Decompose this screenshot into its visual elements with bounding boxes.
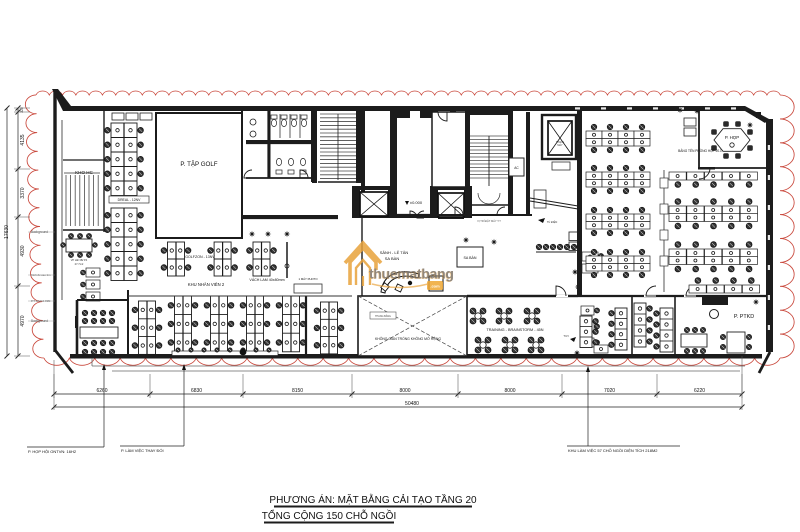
svg-text:P. LÀM VIỆC THAY ĐỔI: P. LÀM VIỆC THAY ĐỔI [121,448,164,453]
svg-text:SA BÀN: SA BÀN [385,256,400,261]
svg-text:17630: 17630 [4,225,10,239]
svg-text:P. HỌP: P. HỌP [725,135,739,140]
svg-text:KHU NHÂN VIÊN 2: KHU NHÂN VIÊN 2 [188,282,225,287]
svg-text:AC: AC [514,166,519,170]
svg-text:PHƯƠNG ÁN: MẶT BẰNG CẢI TẠO TẦ: PHƯƠNG ÁN: MẶT BẰNG CẢI TẠO TẦNG 20 [269,493,477,506]
svg-text:8000: 8000 [504,388,515,394]
svg-text:.com: .com [430,284,440,289]
svg-text:KHO HC: KHO HC [75,170,94,175]
svg-text:VP HĐ 3B/ P4: VP HĐ 3B/ P4 [71,258,88,262]
svg-text:1 MÁY PHOTO: 1 MÁY PHOTO [298,277,318,281]
svg-text:±0.000: ±0.000 [410,200,423,205]
svg-text:4930: 4930 [20,245,26,256]
svg-text:SA BÀN: SA BÀN [464,256,477,260]
svg-text:6830: 6830 [191,388,202,394]
svg-text:BẢNG TÊN PHÒNG HỌP 20.1: BẢNG TÊN PHÒNG HỌP 20.1 [678,148,722,153]
svg-text:TỔNG CỘNG 150 CHỖ NGỒI: TỔNG CỘNG 150 CHỖ NGỒI [262,509,396,522]
svg-text:50480: 50480 [405,401,419,407]
svg-text:MÁY: MÁY [557,144,563,147]
svg-text:DREAL - 12NV: DREAL - 12NV [118,198,141,202]
svg-text:8000: 8000 [399,388,410,394]
svg-text:KHÔNG GIAN TRỐNG KHÔNG MỞ RỘNG: KHÔNG GIAN TRỐNG KHÔNG MỞ RỘNG [375,336,441,341]
svg-text:6260: 6260 [96,388,107,394]
svg-text:THANG BĂNG: THANG BĂNG [375,315,391,318]
svg-text:GOLFZON - 13NV: GOLFZON - 13NV [185,255,215,259]
svg-text:27.7m2: 27.7m2 [75,262,84,266]
svg-text:3370: 3370 [20,187,26,198]
svg-text:4135: 4135 [20,134,26,145]
svg-text:thuematbang: thuematbang [369,266,454,282]
svg-text:P. PTKD: P. PTKD [734,314,754,320]
svg-text:P. TẬP GOLF: P. TẬP GOLF [180,161,217,168]
svg-text:7020: 7020 [604,388,615,394]
svg-text:P. HỌP HỘI ONTVN: 16H2: P. HỌP HỘI ONTVN: 16H2 [28,449,77,454]
svg-text:TRAINING - BRAINSTORM - 45N: TRAINING - BRAINSTORM - 45N [486,328,543,332]
svg-text:VÁCH LAM 40x80mm: VÁCH LAM 40x80mm [249,278,284,282]
svg-text:6220: 6220 [694,388,705,394]
svg-text:SẢNH - LỄ TÂN: SẢNH - LỄ TÂN [380,250,409,255]
svg-text:8150: 8150 [292,388,303,394]
svg-text:225: 225 [20,107,24,113]
svg-text:4970: 4970 [20,315,26,326]
svg-text:KHU LÀM VIỆC 57 CHỖ NGỒI DIỆN: KHU LÀM VIỆC 57 CHỖ NGỒI DIỆN TÍCH 218M2 [568,448,658,453]
svg-text:TIVI: TIVI [563,334,568,338]
svg-text:VỊ TRÍ ĐẶT MÁY T.T: VỊ TRÍ ĐẶT MÁY T.T [477,219,501,223]
